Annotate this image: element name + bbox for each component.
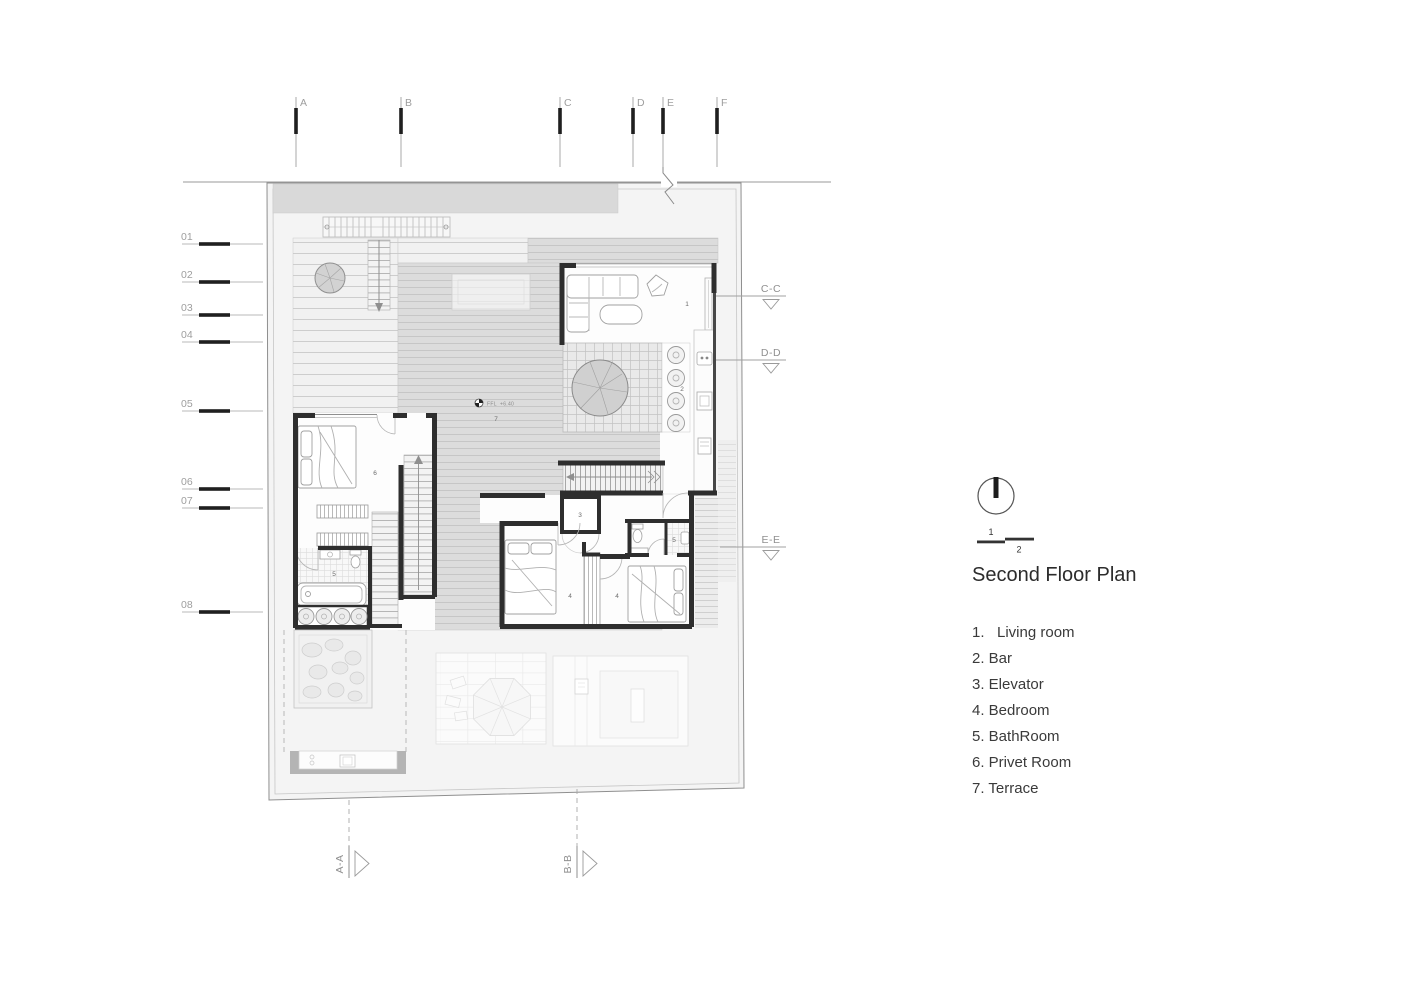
grid-col-f: F (721, 97, 727, 109)
oven-icon (697, 392, 712, 410)
bed-icon (298, 426, 356, 488)
side-deck-east (695, 498, 718, 628)
floor-plan-sheet: FFL +6.40 1 2 3 4 4 5 5 6 7 A B C D E F (0, 0, 1414, 1000)
label-bathroom-left: 5 (332, 571, 336, 578)
label-bathroom-right: 5 (672, 537, 676, 544)
umbrella-terrace (436, 653, 546, 744)
grid-rows: 01 02 03 04 05 06 07 08 (181, 231, 263, 614)
section-bb: B-B (562, 789, 597, 878)
side-deck-northeast (718, 440, 736, 582)
label-living-room: 1 (685, 301, 689, 308)
legend-item: 6. Privet Room (972, 754, 1071, 771)
label-bedroom-right: 4 (615, 593, 619, 600)
level-marker-text: FFL +6.40 (487, 402, 514, 408)
label-bedroom-left: 4 (568, 593, 572, 600)
grid-row-04: 04 (181, 329, 193, 341)
section-arrow-icon (583, 851, 597, 876)
section-cc-label: C-C (761, 283, 781, 295)
round-table-icon (572, 360, 628, 416)
skylight-panel (452, 274, 530, 310)
bathroom-left (296, 548, 371, 627)
wardrobe-divider (584, 553, 600, 627)
vanity-icon (320, 550, 340, 559)
north-indicator-icon (978, 477, 1014, 514)
grid-col-b: B (405, 97, 412, 109)
legend: 1. Living room 2. Bar 3. Elevator 4. Bed… (972, 624, 1075, 797)
legend-item: 2. Bar (972, 650, 1012, 667)
title-block: 1 2 Second Floor Plan 1. Living room 2. … (972, 477, 1137, 797)
umbrella-icon (473, 678, 530, 735)
terrace-stair-icon (368, 240, 390, 312)
scale-bar: 1 2 (977, 527, 1034, 555)
pergola-stair-icon (323, 217, 450, 237)
toilet-icon (350, 550, 361, 568)
grid-row-07: 07 (181, 495, 193, 507)
bathtub-icon (297, 583, 366, 606)
legend-item: 5. BathRoom (972, 728, 1060, 745)
grid-col-d: D (637, 97, 645, 109)
lower-deck (290, 751, 406, 774)
section-markers-bottom: A-A B-B (334, 789, 597, 878)
planter-row-icon (296, 606, 368, 627)
floor-plan-svg: FFL +6.40 1 2 3 4 4 5 5 6 7 A B C D E F (0, 0, 1414, 1000)
label-bar: 2 (680, 386, 684, 393)
section-arrow-icon (355, 851, 369, 876)
grid-row-01: 01 (181, 231, 193, 243)
kitchen-counter (694, 330, 715, 492)
grid-col-a: A (300, 97, 307, 109)
section-arrow-icon (763, 364, 779, 374)
page-title: Second Floor Plan (972, 564, 1137, 586)
scale-bar-lower: 2 (1016, 545, 1021, 555)
legend-item: 7. Terrace (972, 780, 1038, 797)
pool (553, 656, 688, 746)
bathroom-right (627, 521, 690, 555)
bed-icon (628, 566, 686, 622)
label-privet-room: 6 (373, 470, 377, 477)
roof-band (273, 184, 618, 213)
grid-col-e: E (667, 97, 674, 109)
tv-shelf-icon (705, 278, 712, 330)
section-arrow-icon (763, 300, 779, 310)
legend-item: 3. Elevator (972, 676, 1044, 693)
grid-col-c: C (564, 97, 572, 109)
pool-ladder-icon (575, 679, 588, 694)
section-ee-label: E-E (761, 534, 780, 546)
section-aa-label: A-A (334, 854, 346, 873)
coffee-table-icon (600, 305, 642, 324)
kitchen-stair-icon (563, 464, 663, 491)
legend-item: 1. Living room (972, 624, 1075, 641)
bed-icon (505, 540, 556, 614)
grid-row-05: 05 (181, 398, 193, 410)
section-aa: A-A (334, 800, 369, 878)
label-elevator: 3 (578, 512, 582, 519)
grid-row-06: 06 (181, 476, 193, 488)
washbasin-icon (681, 532, 689, 544)
toilet-icon (632, 524, 643, 543)
section-arrow-icon (763, 551, 779, 561)
grid-row-03: 03 (181, 302, 193, 314)
label-terrace: 7 (494, 416, 498, 423)
tree-icon (315, 263, 345, 293)
scale-bar-upper: 1 (988, 527, 993, 537)
sink-icon (697, 352, 712, 365)
section-dd-label: D-D (761, 347, 781, 359)
legend-item: 4. Bedroom (972, 702, 1050, 719)
grid-row-02: 02 (181, 269, 193, 281)
section-bb-label: B-B (562, 854, 574, 873)
rock-garden (294, 630, 372, 708)
grid-row-08: 08 (181, 599, 193, 611)
